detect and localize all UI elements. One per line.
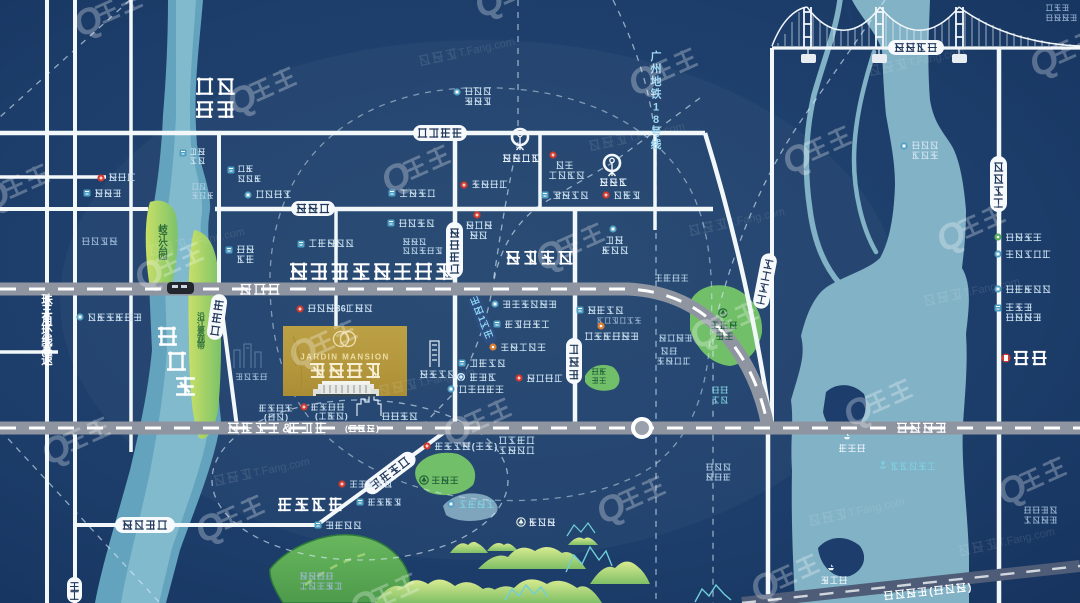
svg-text:): ) xyxy=(376,424,379,434)
svg-text:3: 3 xyxy=(336,304,341,314)
svg-text:(: ( xyxy=(264,412,267,422)
svg-text:广: 广 xyxy=(651,49,662,63)
svg-text:速: 速 xyxy=(41,353,53,367)
svg-text:): ) xyxy=(285,412,288,422)
svg-text:(: ( xyxy=(345,424,348,434)
svg-text:): ) xyxy=(494,442,497,452)
svg-text:8: 8 xyxy=(653,114,659,126)
svg-text:): ) xyxy=(345,411,348,421)
svg-text:(: ( xyxy=(315,411,318,421)
svg-text:6: 6 xyxy=(341,304,346,314)
svg-text:1: 1 xyxy=(653,101,659,113)
svg-text:带: 带 xyxy=(197,341,205,351)
